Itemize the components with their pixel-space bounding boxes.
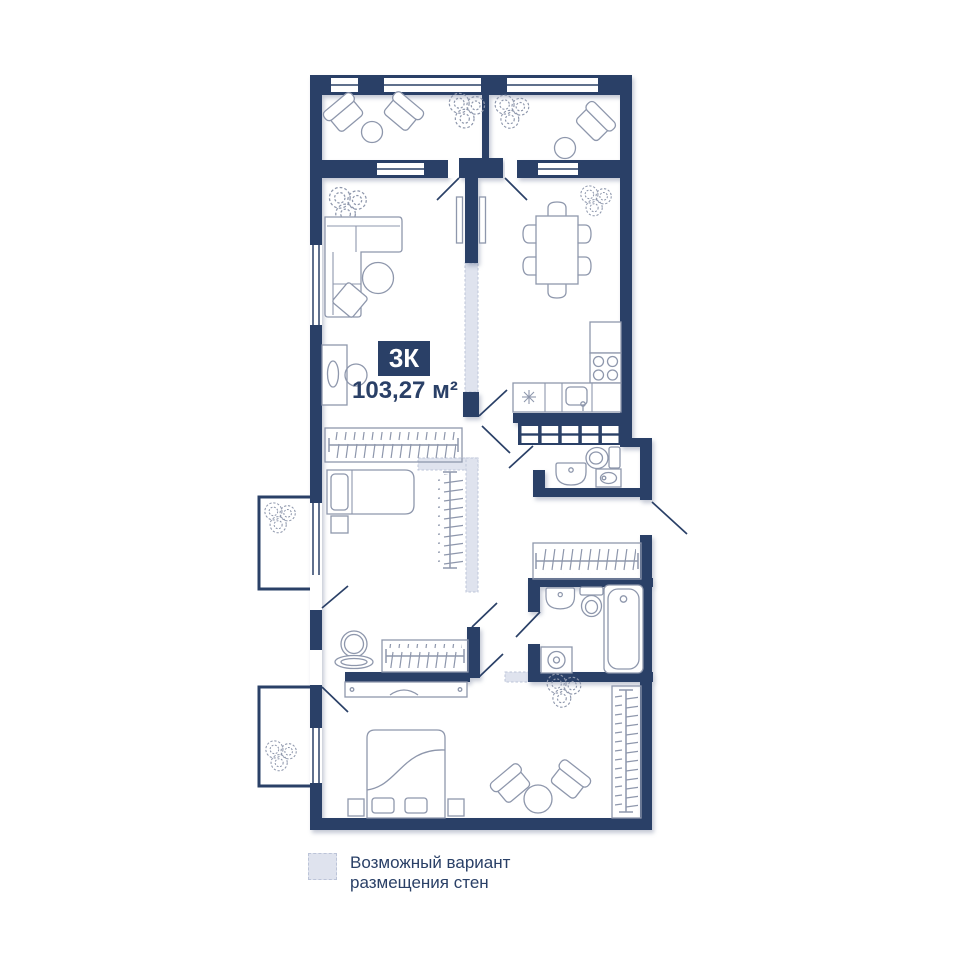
dresser-icon (345, 682, 467, 697)
plant-icon (265, 503, 295, 533)
wardrobe-icon (382, 640, 468, 672)
legend-text: Возможный вариант размещения стен (350, 853, 510, 894)
plant-icon (495, 95, 529, 128)
window (377, 163, 424, 175)
dining-chair-icon (578, 257, 591, 275)
legend-line-2: размещения стен (350, 873, 510, 893)
plant-icon (449, 93, 484, 128)
window (310, 245, 322, 325)
wardrobe-icon (325, 428, 462, 462)
window (384, 78, 481, 92)
washing-machine-icon (541, 647, 572, 673)
side-balconies (259, 497, 310, 786)
dining-chair-icon (548, 202, 566, 215)
window (507, 78, 598, 92)
kitchen (513, 322, 621, 412)
armchair-icon (573, 100, 618, 145)
pouf-icon (363, 263, 394, 294)
bathroom-top (556, 447, 621, 487)
plant-icon (581, 186, 611, 216)
desk-icon (322, 345, 347, 405)
window (331, 78, 358, 92)
variant-wall (465, 263, 478, 392)
nightstand-icon (348, 799, 364, 816)
variant-wall (505, 672, 529, 682)
balcony-top-right (495, 95, 617, 158)
armchair-icon (380, 90, 425, 134)
plant-icon (266, 741, 296, 771)
variant-walls (418, 263, 529, 682)
coffee-table-icon (555, 138, 576, 159)
toilet-icon (586, 447, 620, 469)
toilet-icon (580, 587, 603, 617)
coffee-table-icon (524, 785, 552, 813)
double-bed-icon (367, 730, 445, 818)
washing-machine-icon (596, 469, 621, 487)
legend-line-1: Возможный вариант (350, 853, 510, 873)
closet-rail-icon (438, 472, 463, 568)
coffee-table-icon (362, 122, 383, 143)
window (310, 728, 322, 783)
dining-chair-icon (523, 257, 536, 275)
tv-panel-icon (480, 197, 486, 243)
armchair-icon (322, 91, 367, 135)
dining-room (480, 186, 612, 298)
window (310, 503, 322, 575)
single-bed-icon (327, 470, 414, 514)
nightstand-icon (448, 799, 464, 816)
tv-panel-icon (457, 197, 463, 243)
ventilation-shaft (518, 423, 622, 445)
variant-wall (466, 458, 478, 592)
hall-closet (533, 543, 641, 579)
wardrobe-icon (612, 686, 641, 818)
dining-chair-icon (578, 225, 591, 243)
dresser-mirror-icon (335, 631, 373, 669)
apartment-type-badge: 3К (378, 341, 430, 376)
floor-plan-page: 3К 103,27 м² Возможный вариант размещени… (0, 0, 960, 960)
bedroom-bottom (345, 674, 641, 818)
balcony-top-left (322, 90, 485, 143)
variant-wall-swatch (308, 853, 337, 880)
stove-icon (590, 353, 621, 383)
balcony (259, 687, 310, 786)
window (538, 163, 578, 175)
dining-chair-icon (523, 225, 536, 243)
bathroom-bottom (541, 585, 643, 673)
kitchen-cabinet-icon (590, 322, 621, 353)
legend: Возможный вариант размещения стен (308, 853, 510, 894)
armchair-icon (547, 758, 592, 801)
apartment-area-label: 103,27 м² (352, 377, 472, 405)
bathroom-sink-icon (546, 588, 575, 609)
floor-plan-svg (0, 0, 960, 960)
bathroom-sink-icon (556, 463, 586, 485)
fridge-icon (522, 390, 536, 404)
nightstand-icon (331, 516, 348, 533)
dining-table-icon (536, 216, 578, 284)
bathtub-icon (604, 585, 643, 673)
dining-chair-icon (548, 285, 566, 298)
